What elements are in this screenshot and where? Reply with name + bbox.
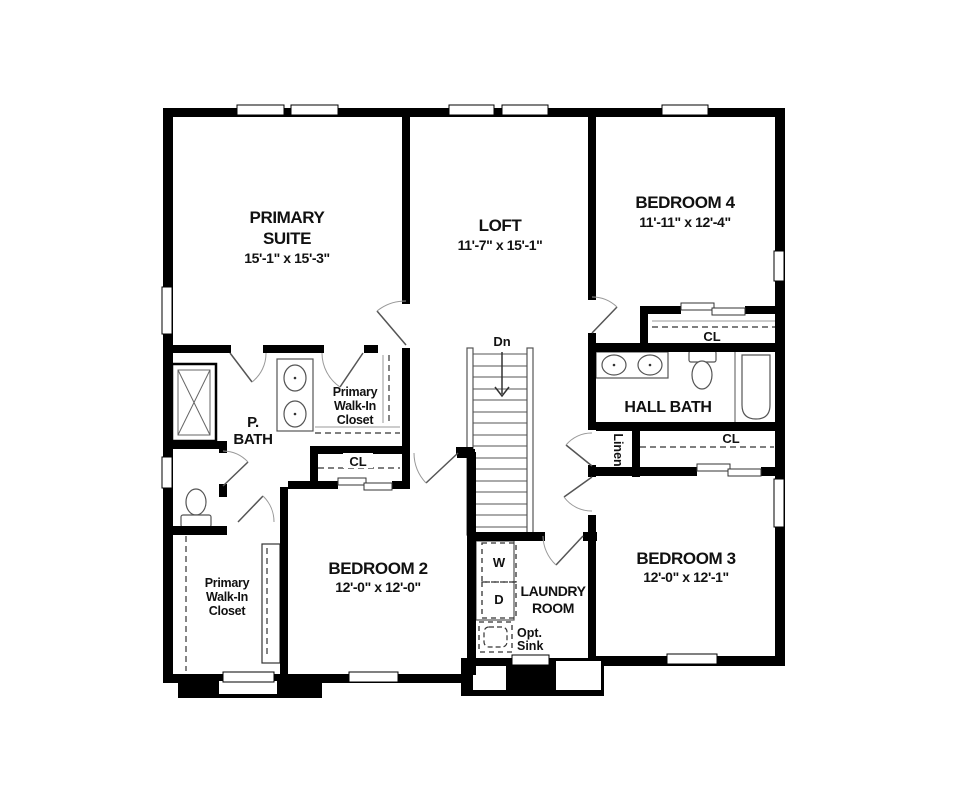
hall-bath-door (566, 445, 592, 466)
window (774, 251, 784, 281)
primary-bath-line1: P. (247, 414, 259, 431)
room-label-primary-bath: P. BATH (233, 414, 272, 448)
svg-text:Sink: Sink (517, 639, 543, 653)
window (162, 457, 172, 488)
stairs-dn-label: Dn (493, 334, 510, 349)
optional-sink (479, 622, 512, 652)
opt-sink-label: Opt. Sink (517, 626, 543, 653)
bedroom-4-dims: 11'-11" x 12'-4" (639, 214, 730, 230)
primary-suite-dims: 15'-1" x 15'-3" (244, 250, 330, 266)
primary-suite-name-line1: PRIMARY (250, 208, 326, 227)
window (162, 287, 172, 334)
hall-bath-vanity (596, 352, 668, 378)
svg-text:Walk-In: Walk-In (206, 590, 248, 604)
bedroom-2-name: BEDROOM 2 (328, 559, 427, 578)
room-label-bedroom-2: BEDROOM 2 12'-0" x 12'-0" (328, 559, 427, 595)
primary-suite-name-line2: SUITE (263, 229, 311, 248)
primary-bath-line2: BATH (233, 431, 272, 448)
room-label-laundry: LAUNDRY ROOM (520, 583, 586, 616)
closet-shelf-unit (262, 544, 280, 663)
dryer-label: D (494, 592, 503, 607)
window (662, 105, 708, 115)
svg-text:Walk-In: Walk-In (334, 399, 376, 413)
loft-dims: 11'-7" x 15'-1" (458, 237, 543, 253)
window (774, 479, 784, 527)
bedroom-2-door (426, 453, 458, 483)
svg-text:CL: CL (349, 454, 366, 469)
washer-label: W (493, 555, 506, 570)
svg-text:Primary: Primary (205, 576, 250, 590)
laundry-door (556, 536, 583, 565)
svg-text:CL: CL (722, 431, 739, 446)
window (667, 654, 717, 664)
hall-bath-toilet (689, 351, 716, 389)
bedroom-3-name: BEDROOM 3 (636, 549, 735, 568)
primary-toilet (181, 489, 211, 527)
closet-label-bedroom-2: CL (343, 453, 373, 469)
window (502, 105, 548, 115)
room-label-linen: Linen (611, 433, 625, 466)
bedroom-2-dims: 12'-0" x 12'-0" (335, 579, 421, 595)
staircase (467, 348, 533, 535)
svg-text:ROOM: ROOM (532, 600, 574, 616)
window (349, 672, 398, 682)
svg-text:LAUNDRY: LAUNDRY (520, 583, 586, 599)
window (223, 672, 274, 682)
primary-suite-door (377, 311, 406, 345)
room-label-loft: LOFT 11'-7" x 15'-1" (458, 216, 543, 253)
window (291, 105, 338, 115)
hall-bath-tub (735, 350, 776, 424)
floor-plan-page: PRIMARY SUITE 15'-1" x 15'-3" LOFT 11'-7… (0, 0, 970, 810)
primary-shower (172, 364, 216, 441)
primary-closet-door (340, 353, 363, 387)
bedroom-3-dims: 12'-0" x 12'-1" (643, 569, 729, 585)
bedroom-4-door (592, 307, 617, 333)
primary-vanity (277, 359, 313, 431)
water-closet-door (223, 462, 248, 486)
loft-name: LOFT (479, 216, 523, 235)
room-label-hall-bath: HALL BATH (624, 399, 711, 416)
closet-label-bedroom-4: CL (703, 329, 720, 344)
window (512, 655, 549, 665)
bedroom-4-name: BEDROOM 4 (635, 193, 735, 212)
closet-label-bedroom-3: CL (716, 431, 747, 446)
window (449, 105, 494, 115)
lower-closet-door (238, 496, 263, 522)
svg-text:Closet: Closet (209, 604, 247, 618)
svg-text:Opt.: Opt. (517, 626, 542, 640)
svg-text:Primary: Primary (333, 385, 378, 399)
room-label-primary-suite: PRIMARY SUITE 15'-1" x 15'-3" (244, 208, 330, 266)
room-label-primary-closet-upper: Primary Walk-In Closet (333, 385, 378, 427)
room-label-primary-closet-lower: Primary Walk-In Closet (205, 576, 250, 618)
washer-dryer (476, 541, 516, 620)
floor-plan-drawing: PRIMARY SUITE 15'-1" x 15'-3" LOFT 11'-7… (0, 0, 970, 810)
stair-rail-right (527, 348, 533, 535)
sliding-doors (338, 303, 761, 490)
window (237, 105, 284, 115)
primary-bath-door (230, 353, 252, 382)
svg-text:Closet: Closet (337, 413, 375, 427)
room-label-bedroom-3: BEDROOM 3 12'-0" x 12'-1" (636, 549, 735, 585)
bedroom-3-door (564, 477, 592, 497)
room-label-bedroom-4: BEDROOM 4 11'-11" x 12'-4" (635, 193, 735, 230)
